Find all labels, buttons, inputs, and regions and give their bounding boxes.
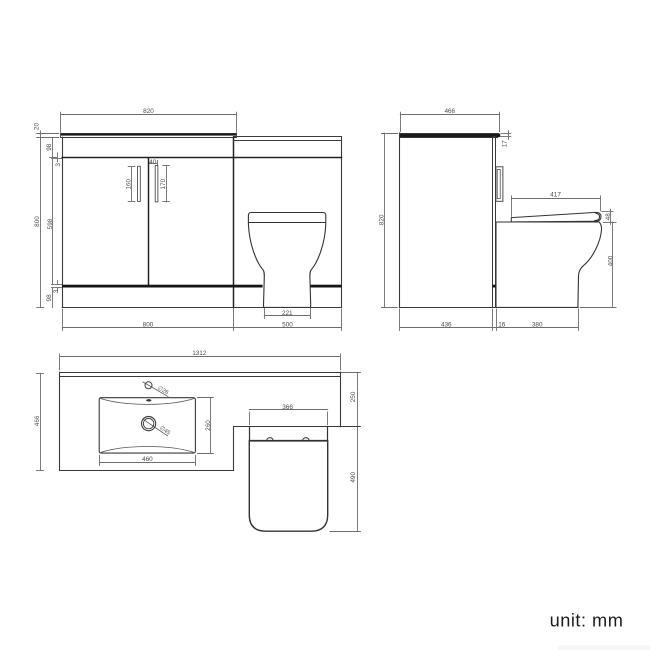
svg-text:400: 400 <box>607 255 614 266</box>
svg-text:820: 820 <box>378 214 385 225</box>
svg-text:40: 40 <box>149 159 157 166</box>
svg-text:98: 98 <box>46 143 53 151</box>
svg-text:460: 460 <box>142 456 153 463</box>
svg-text:436: 436 <box>441 322 452 329</box>
svg-text:800: 800 <box>143 321 154 328</box>
svg-text:1312: 1312 <box>192 350 207 357</box>
svg-text:3: 3 <box>55 163 62 167</box>
svg-text:250: 250 <box>350 391 357 402</box>
svg-text:20: 20 <box>34 123 41 131</box>
svg-text:490: 490 <box>350 472 357 483</box>
svg-text:unit: mm: unit: mm <box>550 611 624 631</box>
svg-text:800: 800 <box>34 216 41 227</box>
svg-text:380: 380 <box>532 322 543 329</box>
svg-text:98: 98 <box>46 294 53 302</box>
svg-text:466: 466 <box>34 415 41 426</box>
svg-text:48: 48 <box>605 213 612 221</box>
svg-text:3: 3 <box>53 289 60 293</box>
svg-text:160: 160 <box>125 179 132 190</box>
svg-text:500: 500 <box>282 321 293 328</box>
svg-text:598: 598 <box>47 218 54 229</box>
svg-text:221: 221 <box>282 310 293 317</box>
svg-text:260: 260 <box>205 420 212 431</box>
svg-text:466: 466 <box>444 108 455 115</box>
svg-text:170: 170 <box>160 178 167 189</box>
svg-text:16: 16 <box>498 322 506 329</box>
svg-text:17: 17 <box>502 140 509 148</box>
svg-text:∅26: ∅26 <box>156 385 169 397</box>
svg-text:366: 366 <box>282 404 293 411</box>
svg-text:417: 417 <box>550 192 561 199</box>
svg-text:820: 820 <box>143 108 154 115</box>
